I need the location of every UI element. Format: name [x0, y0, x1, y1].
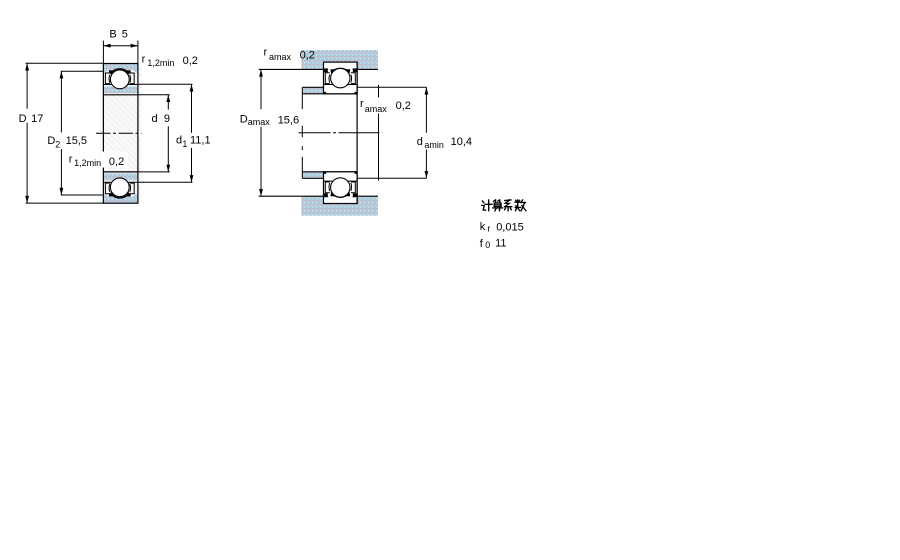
svg-text:r: r	[142, 53, 146, 65]
svg-text:d: d	[176, 135, 182, 147]
svg-text:0,2: 0,2	[183, 55, 198, 67]
svg-text:d: d	[152, 113, 158, 125]
svg-text:17: 17	[31, 113, 43, 125]
svg-text:amax: amax	[365, 104, 388, 114]
svg-text:amin: amin	[424, 140, 444, 150]
svg-text:9: 9	[164, 113, 170, 125]
svg-text:15,6: 15,6	[278, 114, 299, 126]
svg-text:0,2: 0,2	[396, 100, 411, 112]
svg-text:0: 0	[485, 240, 490, 250]
svg-text:11,1: 11,1	[190, 135, 211, 147]
svg-text:r: r	[360, 98, 364, 110]
svg-text:r: r	[264, 47, 268, 59]
svg-text:r: r	[487, 224, 490, 234]
svg-text:d: d	[417, 136, 423, 148]
svg-text:B: B	[109, 28, 116, 40]
svg-text:D: D	[47, 135, 55, 147]
svg-text:15,5: 15,5	[66, 135, 87, 147]
svg-text:D: D	[19, 113, 27, 125]
svg-text:2: 2	[55, 139, 60, 149]
svg-text:0,2: 0,2	[300, 50, 315, 62]
svg-text:0,2: 0,2	[109, 156, 124, 168]
svg-text:k: k	[480, 221, 486, 233]
svg-text:1: 1	[182, 139, 187, 149]
svg-text:1,2min: 1,2min	[74, 158, 101, 168]
svg-text:r: r	[69, 153, 73, 165]
svg-text:5: 5	[122, 28, 128, 40]
svg-text:amax: amax	[269, 52, 292, 62]
svg-text:0,015: 0,015	[496, 221, 524, 233]
svg-text:1,2min: 1,2min	[147, 58, 174, 68]
svg-text:10,4: 10,4	[451, 136, 472, 148]
svg-text:D: D	[240, 113, 248, 125]
svg-text:11: 11	[495, 237, 506, 249]
svg-text:amax: amax	[248, 117, 271, 127]
